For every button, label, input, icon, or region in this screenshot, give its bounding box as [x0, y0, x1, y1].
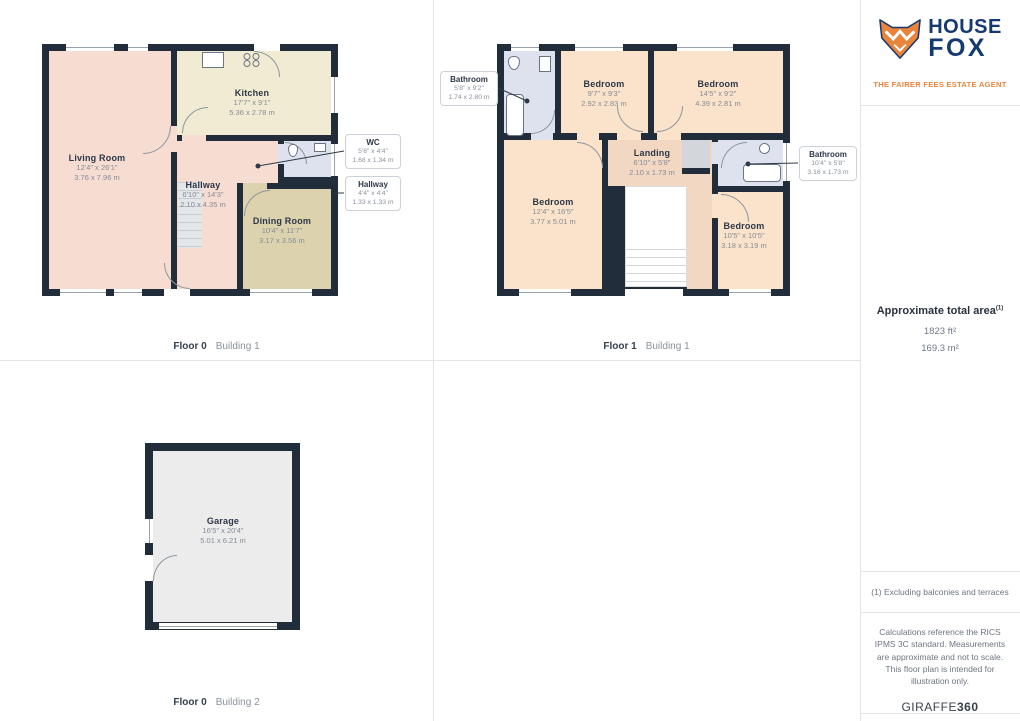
footnote-2-text: Calculations reference the RICS IPMS 3C … — [873, 626, 1007, 688]
window — [729, 289, 771, 296]
exterior-door-gap — [254, 44, 280, 51]
fox-icon — [878, 18, 922, 60]
door-gap — [617, 133, 641, 140]
caption-floor0-building1: Floor 0Building 1 — [0, 341, 433, 352]
caption-floor0-building2: Floor 0Building 2 — [0, 697, 433, 708]
footnote-1: (1) Excluding balconies and terraces — [861, 572, 1019, 612]
room-label-bedroom-left: Bedroom 12'4" x 16'5" 3.77 x 5.01 m — [530, 197, 575, 227]
floorplan-page: Living Room 12'4" x 26'1" 3.76 x 7.96 m … — [0, 0, 1020, 721]
brand-tagline: THE FAIRER FEES ESTATE AGENT — [861, 80, 1019, 89]
door-gap — [712, 194, 718, 218]
stairs — [626, 249, 686, 286]
callout-hallway: Hallway 4'4" x 4'4" 1.33 x 1.33 m — [345, 176, 401, 211]
room-label-bedroom-bot-right: Bedroom 10'5" x 10'5" 3.18 x 3.19 m — [721, 221, 766, 251]
window — [145, 519, 153, 543]
basin-icon — [539, 56, 551, 72]
total-area-block: Approximate total area(1) 1823 ft² 169.3… — [861, 305, 1019, 357]
window — [783, 143, 790, 181]
stove-icon — [242, 52, 262, 68]
callout-wc: WC 5'6" x 4'4" 1.68 x 1.34 m — [345, 134, 401, 169]
window — [60, 289, 106, 296]
caption-floor1-building1: Floor 1Building 1 — [433, 341, 860, 352]
housefox-logo: HOUSE FOX — [861, 18, 1019, 60]
garage-door — [159, 623, 277, 629]
total-area-ft: 1823 ft² — [861, 323, 1019, 340]
bathtub-icon — [743, 164, 781, 182]
wall-segment — [682, 168, 710, 174]
logo-wordmark: HOUSE FOX — [928, 19, 1002, 59]
window — [519, 289, 571, 296]
room-label-bedroom-top-mid: Bedroom 9'7" x 9'3" 2.92 x 2.83 m — [581, 79, 626, 109]
window — [511, 44, 539, 51]
sink-icon — [202, 52, 224, 68]
total-area-m: 169.3 m² — [861, 340, 1019, 357]
room-cupboard — [682, 140, 710, 168]
callout-bathroom-right: Bathroom 10'4" x 5'8" 3.16 x 1.73 m — [799, 146, 857, 181]
room-label-landing: Landing 6'10" x 5'8" 2.10 x 1.73 m — [629, 148, 674, 178]
window — [128, 44, 148, 51]
door-gap — [531, 133, 553, 140]
window — [250, 289, 312, 296]
bathtub-icon — [506, 94, 524, 136]
window — [331, 144, 338, 176]
door-gap — [712, 142, 718, 164]
front-door-gap — [164, 289, 190, 296]
room-label-living: Living Room 12'4" x 26'1" 3.76 x 7.96 m — [69, 153, 126, 183]
divider-right-1 — [861, 105, 1020, 106]
basin-icon — [759, 143, 770, 154]
door-gap — [577, 133, 599, 140]
basin-icon — [314, 143, 326, 152]
room-label-garage: Garage 16'5" x 20'4" 5.01 x 6.21 m — [200, 516, 245, 546]
stairwell-gap — [625, 289, 683, 296]
total-area-title: Approximate total area(1) — [861, 305, 1019, 317]
room-label-kitchen: Kitchen 17'7" x 9'1" 2.10 x 4.35 m 5.36 … — [229, 88, 274, 118]
window — [66, 44, 114, 51]
door-gap — [182, 135, 206, 141]
door-gap — [171, 126, 177, 152]
callout-bathroom-left: Bathroom 5'8" x 9'2" 1.74 x 2.80 m — [440, 71, 498, 106]
door-gap — [243, 183, 267, 189]
window — [331, 77, 338, 113]
footnote-2: Calculations reference the RICS IPMS 3C … — [861, 612, 1019, 713]
window — [677, 44, 733, 51]
giraffe360-logo: GIRAFFE360 — [873, 699, 1007, 716]
room-landing-corridor — [687, 186, 712, 289]
window — [114, 289, 142, 296]
room-label-dining: Dining Room 10'4" x 11'7" 3.17 x 3.56 m — [253, 216, 311, 246]
door-gap — [278, 144, 284, 164]
side-door-gap — [145, 555, 153, 581]
room-label-hallway: Hallway 6'10" x 14'3" 2.10 x 4.35 m — [180, 180, 225, 210]
window — [575, 44, 623, 51]
divider-horizontal-left — [0, 360, 861, 361]
room-label-bedroom-top-right: Bedroom 14'5" x 9'2" 4.39 x 2.81 m — [695, 79, 740, 109]
door-gap — [657, 133, 681, 140]
